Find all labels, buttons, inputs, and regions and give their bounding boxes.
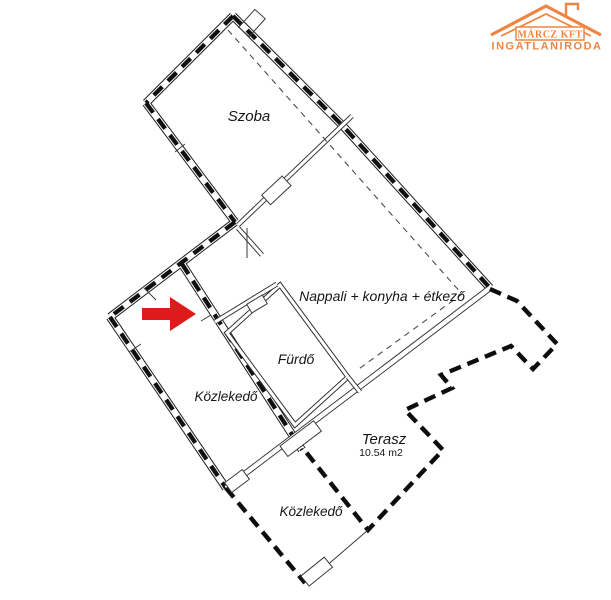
- floor-plan-page: Szoba Nappali + konyha + étkező Fürdő Kö…: [0, 0, 611, 600]
- doors-layer: [225, 176, 333, 586]
- dimension-tick-2: [201, 315, 211, 321]
- room-label-furdo: Fürdő: [278, 351, 315, 367]
- terrace-zigzag-boundary: [306, 289, 557, 530]
- door-bottom-exit: [301, 557, 332, 586]
- company-logo: MÁRCZ KFT INGATLANIRODA: [491, 4, 602, 53]
- room-label-szoba: Szoba: [228, 108, 271, 125]
- bottom-corridor-west-boundary: [226, 488, 305, 583]
- logo-company-name: MÁRCZ KFT: [517, 29, 582, 41]
- door-szoba: [262, 176, 291, 205]
- house-chimney-icon: [566, 4, 578, 16]
- room-label-kozlekedo-left: Közlekedő: [194, 389, 258, 404]
- room-area-terasz: 10.54 m2: [359, 447, 403, 459]
- room-labels-layer: Szoba Nappali + konyha + étkező Fürdő Kö…: [194, 108, 465, 519]
- room-label-kozlekedo-bottom: Közlekedő: [279, 504, 343, 519]
- location-marker-arrow: [142, 297, 196, 331]
- logo-subtitle: INGATLANIRODA: [492, 41, 603, 53]
- floor-plan-drawing: Szoba Nappali + konyha + étkező Fürdő Kö…: [0, 0, 611, 600]
- room-label-nappali: Nappali + konyha + étkező: [299, 288, 465, 304]
- room-label-terasz: Terasz: [362, 431, 407, 448]
